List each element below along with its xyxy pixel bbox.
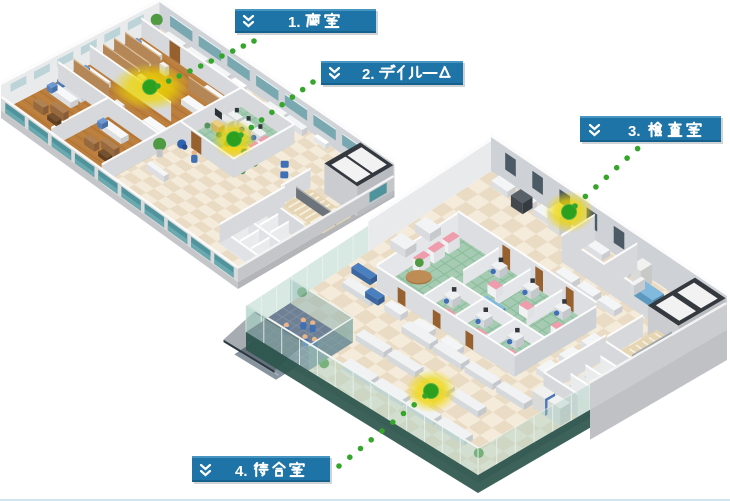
- svg-text:4.: 4.: [235, 463, 248, 480]
- svg-text:3.: 3.: [628, 123, 641, 140]
- svg-text:2.: 2.: [362, 66, 375, 83]
- svg-text:1.: 1.: [288, 14, 301, 31]
